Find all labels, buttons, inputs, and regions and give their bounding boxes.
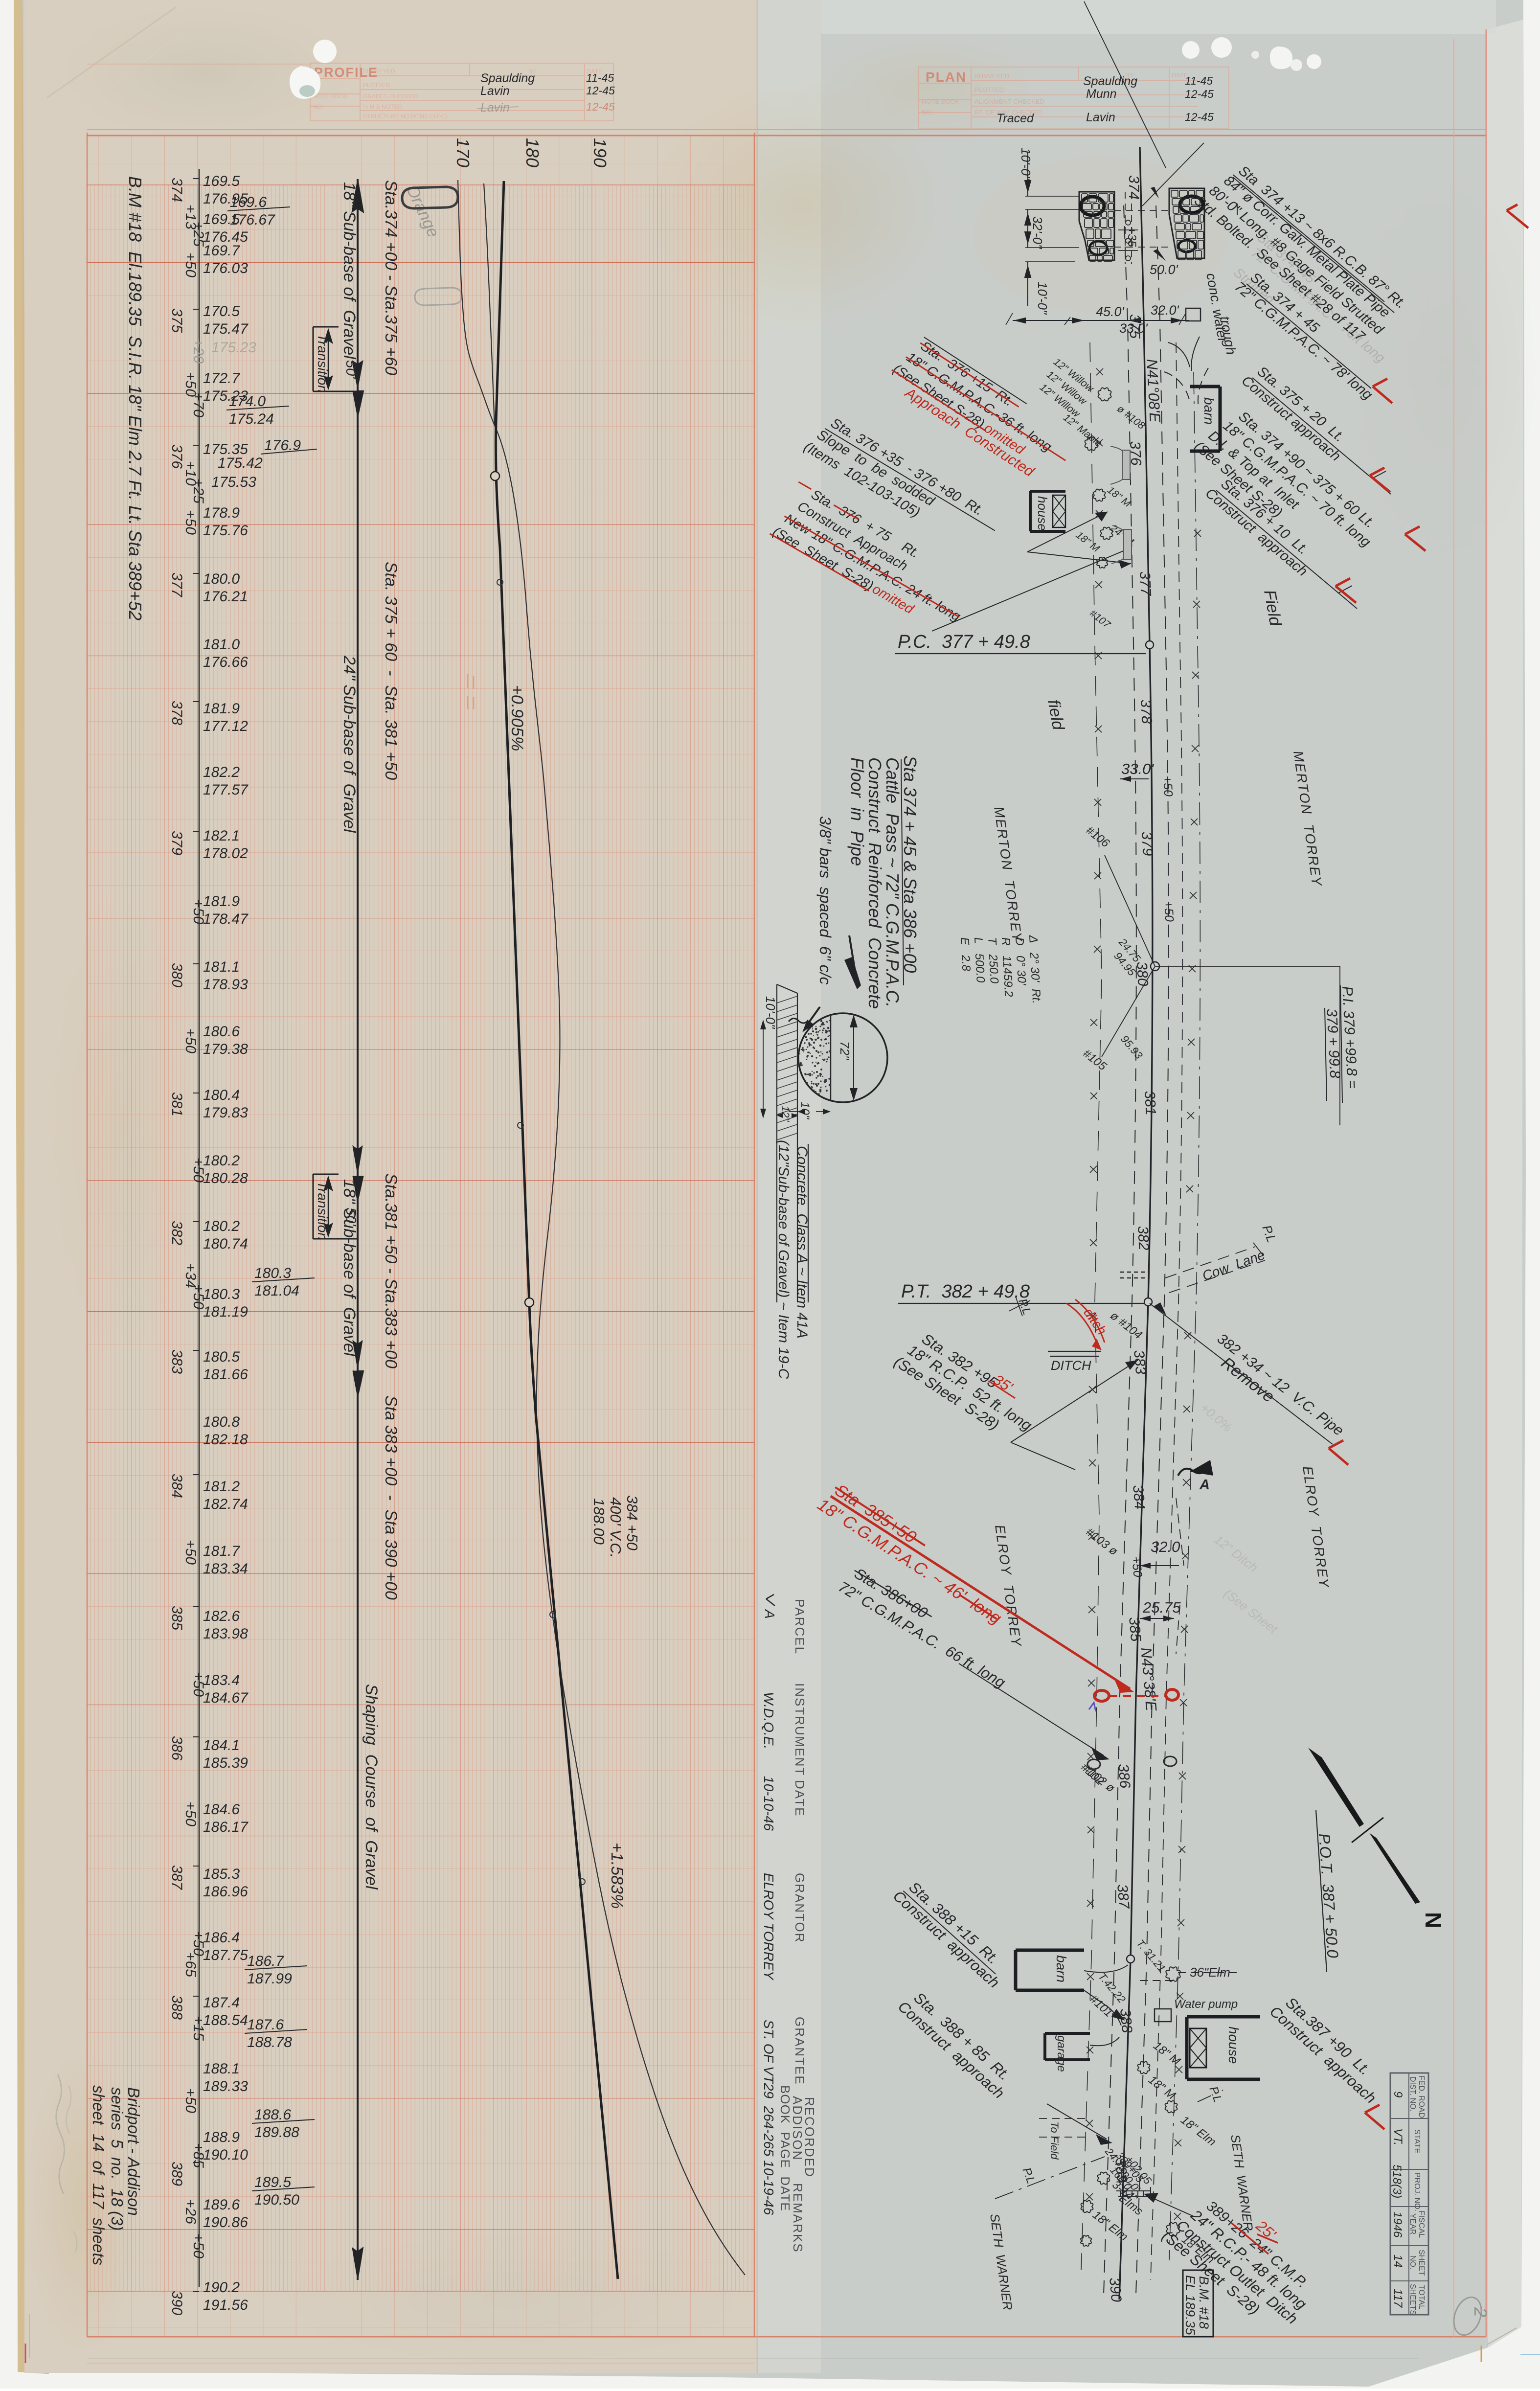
svg-text:E 2.8: E 2.8 (958, 937, 973, 972)
svg-text:179.38: 179.38 (203, 1041, 248, 1057)
svg-text:181.1: 181.1 (203, 959, 240, 975)
svg-text:188.54: 188.54 (203, 2012, 248, 2028)
svg-text:190.10: 190.10 (203, 2147, 248, 2163)
svg-text:382: 382 (169, 1221, 185, 1245)
svg-text:180: 180 (522, 138, 543, 167)
svg-text:FED. ROAD: FED. ROAD (1417, 2075, 1426, 2118)
svg-text:180.8: 180.8 (203, 1414, 240, 1430)
svg-text:Floor in Pipe: Floor in Pipe (847, 757, 867, 866)
svg-text:191.56: 191.56 (203, 2297, 248, 2313)
svg-text:182.74: 182.74 (203, 1496, 248, 1512)
svg-text:10'-0": 10'-0" (1035, 282, 1050, 315)
svg-text:GRANTOR: GRANTOR (793, 1873, 807, 1943)
svg-text:+26: +26 (182, 2199, 199, 2224)
svg-text:169.6: 169.6 (230, 194, 267, 210)
svg-text:house: house (1226, 2027, 1241, 2064)
svg-text:Transition: Transition (315, 1181, 330, 1240)
svg-text:177.12: 177.12 (203, 718, 248, 734)
svg-text:180.6: 180.6 (203, 1024, 240, 1040)
svg-text:190.50: 190.50 (254, 2192, 299, 2208)
svg-text:12-45: 12-45 (1185, 88, 1214, 100)
svg-text:172.7: 172.7 (203, 370, 240, 387)
svg-text:386: 386 (1115, 1763, 1133, 1789)
svg-text:SURVEYED: SURVEYED (974, 72, 1009, 80)
svg-text:176.66: 176.66 (203, 654, 248, 670)
svg-text:VT.: VT. (1391, 2128, 1404, 2145)
svg-text:183.34: 183.34 (203, 1561, 248, 1577)
svg-text:STRUCTURE NOTATNS CH'KD.: STRUCTURE NOTATNS CH'KD. (363, 113, 449, 120)
svg-text:182.2: 182.2 (203, 764, 240, 780)
svg-text:180.3: 180.3 (254, 1265, 291, 1281)
svg-text:170: 170 (453, 138, 473, 167)
svg-text:FISCAL: FISCAL (1417, 2210, 1426, 2238)
svg-text:Sta 383 +00 - Sta 390 +00: Sta 383 +00 - Sta 390 +00 (382, 1395, 400, 1600)
svg-text:182.18: 182.18 (203, 1432, 248, 1448)
svg-text:2: 2 (1471, 2307, 1491, 2317)
svg-text:189.6: 189.6 (203, 2197, 240, 2213)
svg-text:176.03: 176.03 (203, 260, 248, 276)
svg-text:18" Sub-base of Gravel: 18" Sub-base of Gravel (340, 1179, 359, 1357)
svg-text:188.1: 188.1 (203, 2061, 240, 2077)
svg-text:Lavin: Lavin (480, 84, 510, 98)
svg-text:381: 381 (169, 1092, 185, 1116)
svg-text:B.M #18 El.189.35 S.I.R. 18": B.M #18 El.189.35 S.I.R. 18" Elm 2.7 Ft.… (125, 176, 145, 620)
svg-text:185.3: 185.3 (203, 1866, 240, 1882)
svg-text:Spaulding: Spaulding (480, 71, 535, 85)
svg-text:181.9: 181.9 (203, 893, 240, 910)
svg-text:178.02: 178.02 (203, 845, 248, 862)
svg-text:175.76: 175.76 (203, 523, 248, 539)
svg-text:Spaulding: Spaulding (1083, 74, 1137, 88)
svg-text:PLAN: PLAN (926, 69, 967, 85)
svg-text:180.5: 180.5 (203, 1349, 240, 1365)
svg-text:180.2: 180.2 (203, 1153, 240, 1169)
svg-text:Construct Reinforced Concret: Construct Reinforced Concrete (865, 757, 885, 1009)
svg-text:32.0: 32.0 (1151, 1538, 1180, 1555)
svg-text:183.4: 183.4 (203, 1672, 240, 1688)
svg-text:10'-0": 10'-0" (1019, 148, 1033, 181)
svg-text:+1.583%: +1.583% (608, 1843, 626, 1909)
svg-text:178.9: 178.9 (203, 505, 240, 521)
svg-text:190.2: 190.2 (203, 2279, 240, 2296)
svg-text:11-45: 11-45 (1185, 74, 1213, 87)
svg-text:183.98: 183.98 (203, 1626, 248, 1642)
svg-text:+50: +50 (182, 1028, 199, 1053)
svg-text:180.28: 180.28 (203, 1170, 248, 1186)
svg-text:382: 382 (1134, 1226, 1152, 1251)
svg-text:185.39: 185.39 (203, 1755, 248, 1771)
svg-text:A: A (762, 1609, 777, 1619)
svg-text:24" Sub-base of Gravel: 24" Sub-base of Gravel (340, 655, 359, 833)
svg-text:house: house (1035, 496, 1050, 531)
svg-text:385: 385 (1126, 1617, 1144, 1642)
svg-text:186.17: 186.17 (203, 1819, 249, 1835)
svg-text:180.4: 180.4 (203, 1087, 240, 1103)
svg-text:518(3): 518(3) (1390, 2164, 1404, 2198)
svg-text:388: 388 (169, 1995, 185, 2020)
svg-text:387: 387 (1114, 1884, 1132, 1910)
svg-text:181.9: 181.9 (203, 701, 240, 717)
svg-text:381: 381 (1141, 1091, 1159, 1116)
svg-text:181.7: 181.7 (203, 1543, 240, 1559)
svg-text:STATE: STATE (1413, 2129, 1421, 2153)
svg-text:Sta.374 +00 - Sta.375 +60: Sta.374 +00 - Sta.375 +60 (382, 180, 400, 375)
svg-text:386: 386 (169, 1736, 185, 1760)
svg-text:PLOTTED: PLOTTED (363, 82, 390, 89)
svg-text:NOTE BOOK: NOTE BOOK (313, 93, 348, 100)
svg-text:189.5: 189.5 (254, 2174, 291, 2190)
svg-text:174.0: 174.0 (229, 393, 266, 410)
svg-text:170.5: 170.5 (203, 303, 240, 319)
svg-text:181.66: 181.66 (203, 1366, 248, 1383)
svg-text:NO.: NO. (1408, 2255, 1417, 2269)
svg-text:ELROY TORREY: ELROY TORREY (761, 1873, 776, 1981)
svg-text:10'-0": 10'-0" (763, 996, 778, 1029)
svg-text:379: 379 (1138, 831, 1156, 857)
svg-text:180.0: 180.0 (203, 571, 240, 587)
svg-text:50.0': 50.0' (1150, 262, 1178, 277)
svg-text:+65: +65 (182, 1952, 199, 1977)
svg-text:187.75: 187.75 (203, 1947, 248, 1963)
svg-text:384 +50: 384 +50 (624, 1495, 641, 1550)
svg-text:+50: +50 (182, 1540, 199, 1565)
svg-text:+50: +50 (182, 252, 199, 277)
svg-text:+50: +50 (1161, 901, 1176, 922)
svg-text:169.5: 169.5 (203, 211, 240, 228)
svg-text:180.3: 180.3 (203, 1286, 240, 1302)
svg-text:380: 380 (169, 963, 185, 987)
svg-text:12-45: 12-45 (586, 84, 615, 97)
svg-text:series 5 no. 18 (3): series 5 no. 18 (3) (108, 2087, 126, 2231)
svg-text:+50: +50 (1129, 1556, 1145, 1578)
svg-text:175.53: 175.53 (211, 474, 256, 490)
svg-text:179.83: 179.83 (203, 1105, 248, 1121)
svg-text:169.7: 169.7 (203, 243, 240, 259)
svg-text:¼ M S NOTED: ¼ M S NOTED (363, 103, 402, 110)
svg-text:YEAR: YEAR (1408, 2213, 1417, 2235)
svg-text:177.57: 177.57 (203, 782, 249, 798)
svg-text:186.96: 186.96 (203, 1884, 248, 1900)
svg-text:175.24: 175.24 (229, 411, 274, 427)
svg-text:18" Sub-base of Gravel: 18" Sub-base of Gravel (340, 182, 359, 360)
svg-text:188.00: 188.00 (590, 1498, 608, 1545)
svg-text:45.0': 45.0' (1096, 304, 1125, 319)
svg-text:10-10-46: 10-10-46 (761, 1776, 776, 1831)
svg-text:377: 377 (169, 572, 185, 597)
svg-text:TOTAL: TOTAL (1417, 2285, 1426, 2309)
svg-text:Traced: Traced (996, 112, 1034, 125)
svg-text:187.99: 187.99 (247, 1971, 292, 1987)
svg-text:175.47: 175.47 (203, 321, 249, 337)
svg-text:33.0': 33.0' (1121, 760, 1154, 777)
svg-text:NO.: NO. (922, 109, 933, 116)
svg-text:182.6: 182.6 (203, 1608, 240, 1624)
svg-text:ST. OF VT.: ST. OF VT. (761, 2020, 776, 2086)
svg-text:379: 379 (169, 831, 185, 855)
svg-text:400' V.C.: 400' V.C. (607, 1497, 624, 1558)
svg-text:188.6: 188.6 (254, 2107, 291, 2123)
svg-text:Sta.381 +50 - Sta.383 +00: Sta.381 +50 - Sta.383 +00 (382, 1173, 400, 1368)
svg-text:32'-0": 32'-0" (1030, 216, 1045, 250)
svg-text:178.93: 178.93 (203, 977, 248, 993)
svg-text:1946: 1946 (1391, 2211, 1404, 2238)
svg-text:+50: +50 (190, 2233, 206, 2258)
svg-text:72": 72" (838, 1041, 852, 1061)
svg-text:186.7: 186.7 (247, 1953, 284, 1969)
svg-text:169.5: 169.5 (203, 173, 240, 189)
svg-text:PARCEL: PARCEL (793, 1599, 807, 1655)
svg-text:L 500.0: L 500.0 (972, 937, 987, 983)
svg-text:SURVEYED: SURVEYED (363, 68, 395, 75)
svg-text:N41°08'E: N41°08'E (1143, 359, 1164, 423)
svg-text:383: 383 (169, 1349, 185, 1374)
svg-text:390: 390 (169, 2291, 185, 2315)
svg-text:PLOTTED: PLOTTED (974, 86, 1004, 93)
svg-text:SHEETS: SHEETS (1408, 2284, 1417, 2315)
svg-text:181.04: 181.04 (254, 1283, 299, 1299)
svg-text:sheet 14 of 117 sheets: sheet 14 of 117 sheets (90, 2085, 108, 2265)
svg-text:barn: barn (1201, 397, 1217, 425)
svg-text:Concrete Class A ~ Item 41A: Concrete Class A ~ Item 41A (794, 1146, 810, 1339)
svg-text:BOOK PAGE DATE: BOOK PAGE DATE (778, 2085, 793, 2211)
svg-text:29 264-265 10-19-46: 29 264-265 10-19-46 (761, 2083, 776, 2215)
svg-text:GRANTEE: GRANTEE (793, 2017, 807, 2085)
svg-text:B.M. #18: B.M. #18 (1197, 2276, 1211, 2329)
svg-text:189.33: 189.33 (203, 2078, 248, 2095)
svg-text:190.86: 190.86 (203, 2214, 248, 2231)
svg-text:186.4: 186.4 (203, 1930, 240, 1946)
svg-text:NOTE BOOK: NOTE BOOK (922, 98, 960, 105)
svg-text:DITCH: DITCH (1051, 1358, 1091, 1373)
svg-text:DATE: DATE (793, 1780, 807, 1817)
svg-text:182.1: 182.1 (203, 828, 240, 844)
svg-text:GRADES CHECKED: GRADES CHECKED (363, 93, 418, 100)
svg-text:12-45: 12-45 (586, 100, 615, 113)
svg-text:ALIGNMENT CHECKED: ALIGNMENT CHECKED (974, 98, 1044, 105)
svg-text:11-45: 11-45 (586, 71, 614, 84)
svg-text:3/8" bars spaced 6" c/c: 3/8" bars spaced 6" c/c (816, 816, 834, 985)
svg-text:378: 378 (1137, 699, 1155, 725)
svg-text:378: 378 (169, 701, 185, 725)
svg-text:garage: garage (1055, 2035, 1068, 2072)
svg-text:PROJ. NO.: PROJ. NO. (1413, 2172, 1421, 2211)
svg-text:14: 14 (1391, 2254, 1404, 2268)
svg-text:Cattle Pass ~ 72" C.G.M.P.A.C: Cattle Pass ~ 72" C.G.M.P.A.C. (883, 757, 903, 1007)
svg-text:374: 374 (169, 178, 185, 202)
svg-text:SHEET: SHEET (1417, 2250, 1426, 2276)
svg-text:375: 375 (1127, 314, 1143, 339)
svg-text:374: 374 (1126, 175, 1142, 200)
svg-text:P.T. 382 + 49.8: P.T. 382 + 49.8 (901, 1281, 1030, 1302)
svg-text:Lavin: Lavin (1086, 111, 1115, 124)
svg-text:Bridport - Addison: Bridport - Addison (125, 2087, 143, 2216)
svg-text:N: N (1421, 1912, 1446, 1928)
svg-text:387: 387 (169, 1865, 185, 1890)
svg-text:NO.: NO. (313, 103, 323, 110)
svg-text:+50: +50 (182, 510, 199, 535)
svg-text:384: 384 (169, 1474, 185, 1498)
svg-text:EL 189.35: EL 189.35 (1183, 2275, 1198, 2336)
svg-text:+50: +50 (182, 1801, 199, 1826)
svg-text:+50: +50 (182, 2088, 199, 2113)
svg-text:384: 384 (1130, 1484, 1148, 1510)
svg-text:+20: +20 (190, 339, 206, 364)
svg-text:DIST. NO.: DIST. NO. (1408, 2076, 1417, 2112)
svg-text:Munn: Munn (1086, 87, 1117, 101)
svg-text:180.2: 180.2 (203, 1218, 240, 1234)
svg-text:188.9: 188.9 (203, 2129, 240, 2145)
svg-text:Transition: Transition (315, 334, 330, 393)
svg-text:25.75: 25.75 (1142, 1599, 1181, 1616)
svg-text:+25: +25 (190, 478, 206, 503)
svg-text:Shaping Course of Gravel: Shaping Course of Gravel (362, 1684, 381, 1890)
svg-text:To Field: To Field (1048, 2121, 1061, 2160)
svg-text:REMARKS: REMARKS (791, 2183, 805, 2253)
svg-text:P.C. 377 + 49.8: P.C. 377 + 49.8 (898, 632, 1030, 652)
svg-text:389: 389 (169, 2162, 185, 2186)
svg-text:Water pump: Water pump (1174, 1998, 1238, 2011)
svg-text:9: 9 (1391, 2091, 1404, 2097)
svg-text:117: 117 (1391, 2289, 1404, 2308)
svg-text:181.0: 181.0 (203, 637, 240, 653)
svg-text:D 0° 30': D 0° 30' (1013, 937, 1028, 986)
svg-text:barn: barn (1054, 1955, 1069, 1982)
svg-text:176.21: 176.21 (203, 589, 248, 605)
svg-text:32.0': 32.0' (1151, 303, 1179, 318)
svg-text:175.23: 175.23 (211, 340, 256, 356)
svg-text:Sta. 375 + 60 - Sta. 381 +50: Sta. 375 + 60 - Sta. 381 +50 (382, 562, 400, 780)
svg-text:T 250.0: T 250.0 (985, 937, 1001, 984)
svg-text:184.6: 184.6 (203, 1801, 240, 1818)
svg-text:175.42: 175.42 (218, 455, 263, 471)
svg-text:181.2: 181.2 (203, 1479, 240, 1495)
svg-text:W.D.Q.E.: W.D.Q.E. (761, 1692, 776, 1749)
svg-text:181.19: 181.19 (203, 1304, 248, 1320)
svg-text:385: 385 (169, 1606, 185, 1630)
svg-text:+50: +50 (1160, 775, 1175, 797)
svg-text:INSTRUMENT: INSTRUMENT (793, 1683, 807, 1776)
svg-text:188.78: 188.78 (247, 2034, 292, 2050)
svg-text:(12"Sub-base of Gravel) ~ Item: (12"Sub-base of Gravel) ~ Item 19-C (775, 1140, 792, 1379)
svg-text:50': 50' (343, 360, 359, 379)
svg-text:178.47: 178.47 (203, 911, 249, 927)
svg-text:12-45: 12-45 (1185, 111, 1214, 123)
svg-text:184.1: 184.1 (203, 1737, 240, 1753)
svg-text:187.4: 187.4 (203, 1995, 240, 2011)
svg-text:184.67: 184.67 (203, 1690, 249, 1706)
svg-text:187.6: 187.6 (247, 2017, 284, 2033)
svg-text:375: 375 (169, 308, 185, 333)
svg-text:A: A (1199, 1477, 1210, 1493)
svg-text:180.74: 180.74 (203, 1236, 248, 1252)
svg-text:377: 377 (1136, 571, 1154, 597)
svg-text:189.88: 189.88 (254, 2124, 299, 2141)
svg-text:+0.905%: +0.905% (508, 685, 526, 751)
svg-text:190: 190 (590, 138, 610, 167)
svg-text:390: 390 (1106, 2277, 1124, 2303)
svg-text:380: 380 (1133, 961, 1151, 987)
